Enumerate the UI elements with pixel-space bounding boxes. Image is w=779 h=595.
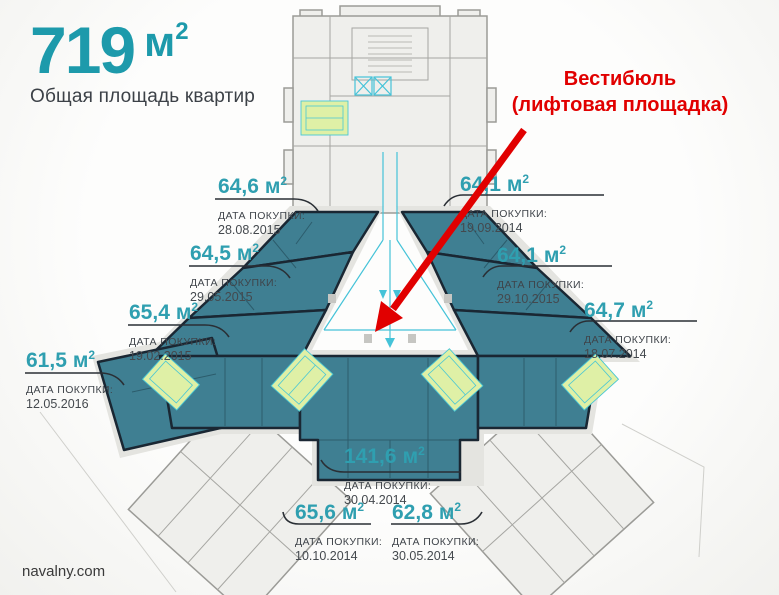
purchase-date: 19.02.2015 [129, 349, 216, 363]
apartment-label-64-1a: 64,1м2 ДАТА ПОКУПКИ: 19.09.2014 [460, 172, 547, 235]
total-area-header: 719 м 2 Общая площадь квартир [30, 18, 255, 108]
total-area-value: 719 м 2 [30, 18, 255, 82]
purchase-date: 10.10.2014 [295, 549, 382, 563]
apartment-label-65-6: 65,6м2 ДАТА ПОКУПКИ: 10.10.2014 [295, 500, 382, 563]
apartment-area: 64,7м2 [584, 298, 671, 323]
vestibule-annotation: Вестибюль (лифтовая площадка) [468, 66, 772, 118]
apartment-label-64-1b: 64,1м2 ДАТА ПОКУПКИ: 29.10.2015 [497, 243, 584, 306]
purchase-caption: ДАТА ПОКУПКИ: [460, 208, 547, 220]
purchase-caption: ДАТА ПОКУПКИ: [190, 277, 277, 289]
purchase-date: 12.05.2016 [26, 397, 113, 411]
purchase-date: 19.09.2014 [460, 221, 547, 235]
apartment-area: 61,5м2 [26, 348, 113, 373]
apartment-area: 62,8м2 [392, 500, 479, 525]
annotation-line2: (лифтовая площадка) [468, 92, 772, 118]
apartment-label-62-8: 62,8м2 ДАТА ПОКУПКИ: 30.05.2014 [392, 500, 479, 563]
apartment-area: 141,6м2 [344, 444, 431, 469]
purchase-caption: ДАТА ПОКУПКИ: [26, 384, 113, 396]
purchase-caption: ДАТА ПОКУПКИ: [344, 480, 431, 492]
apartment-area: 65,4м2 [129, 300, 216, 325]
apartment-label-141-6: 141,6м2 ДАТА ПОКУПКИ: 30.04.2014 [344, 444, 431, 507]
apartment-area: 64,6м2 [218, 174, 305, 199]
apartment-area: 64,5м2 [190, 241, 277, 266]
purchase-date: 18.07.2014 [584, 347, 671, 361]
site-watermark: navalny.com [22, 563, 105, 580]
apartment-area: 64,1м2 [497, 243, 584, 268]
purchase-date: 30.05.2014 [392, 549, 479, 563]
apartment-label-65-4: 65,4м2 ДАТА ПОКУПКИ: 19.02.2015 [129, 300, 216, 363]
purchase-caption: ДАТА ПОКУПКИ: [129, 336, 216, 348]
apartment-label-64-7: 64,7м2 ДАТА ПОКУПКИ: 18.07.2014 [584, 298, 671, 361]
apartment-area: 64,1м2 [460, 172, 547, 197]
purchase-caption: ДАТА ПОКУПКИ: [218, 210, 305, 222]
apartment-label-61-5: 61,5м2 ДАТА ПОКУПКИ: 12.05.2016 [26, 348, 113, 411]
infographic-canvas: 719 м 2 Общая площадь квартир Вестибюль … [0, 0, 779, 595]
apartment-label-64-5: 64,5м2 ДАТА ПОКУПКИ: 29.05.2015 [190, 241, 277, 304]
purchase-caption: ДАТА ПОКУПКИ: [584, 334, 671, 346]
total-area-subtitle: Общая площадь квартир [30, 86, 255, 108]
purchase-date: 28.08.2015 [218, 223, 305, 237]
purchase-caption: ДАТА ПОКУПКИ: [295, 536, 382, 548]
annotation-line1: Вестибюль [468, 66, 772, 92]
purchase-caption: ДАТА ПОКУПКИ: [392, 536, 479, 548]
purchase-caption: ДАТА ПОКУПКИ: [497, 279, 584, 291]
apartment-area: 65,6м2 [295, 500, 382, 525]
apartment-label-64-6: 64,6м2 ДАТА ПОКУПКИ: 28.08.2015 [218, 174, 305, 237]
purchase-date: 29.10.2015 [497, 292, 584, 306]
